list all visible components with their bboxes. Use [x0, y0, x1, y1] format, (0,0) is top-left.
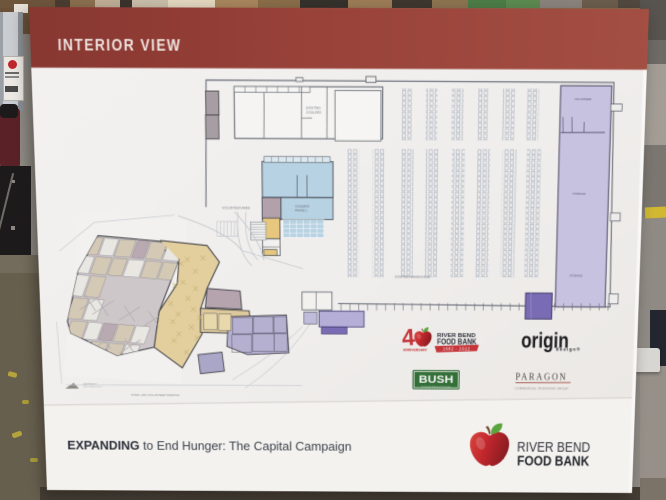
svg-text:ANNIVERSARY: ANNIVERSARY [403, 348, 428, 352]
svg-text:ARCHITECT: ARCHITECT [83, 382, 98, 386]
svg-text:PARAGON: PARAGON [515, 371, 567, 383]
svg-text:PHASE 1: PHASE 1 [295, 209, 308, 213]
svg-text:CONSTRUCTION: CONSTRUCTION [421, 385, 451, 389]
svg-text:FOOD BANK: FOOD BANK [437, 337, 477, 347]
svg-text:design®: design® [556, 346, 581, 353]
svg-text:STAFF AND VOLUNTEER PARKING: STAFF AND VOLUNTEER PARKING [131, 393, 180, 397]
svg-text:INTERIOR VIEW: INTERIOR VIEW [57, 37, 181, 55]
svg-text:FOOD BANK: FOOD BANK [517, 453, 590, 469]
svg-text:VOLUNTEER: VOLUNTEER [575, 97, 592, 101]
svg-text:VOLUNTEER AREA: VOLUNTEER AREA [222, 206, 251, 210]
svg-text:COOLERS: COOLERS [306, 110, 322, 114]
svg-text:STORAGE: STORAGE [572, 192, 586, 196]
svg-text:COMMERCIAL INTERIORS GROUP: COMMERCIAL INTERIORS GROUP [515, 386, 569, 390]
svg-text:EXISTING WAREHOUSE: EXISTING WAREHOUSE [395, 275, 431, 279]
svg-text:SITE PLAN NORTH: SITE PLAN NORTH [83, 386, 102, 389]
svg-text:EXPANDING to End Hunger: The C: EXPANDING to End Hunger: The Capital Cam… [67, 438, 351, 453]
svg-text:1982 - 2022: 1982 - 2022 [443, 346, 471, 352]
svg-text:STORAGE: STORAGE [569, 274, 582, 278]
svg-text:BUSH: BUSH [419, 374, 454, 385]
